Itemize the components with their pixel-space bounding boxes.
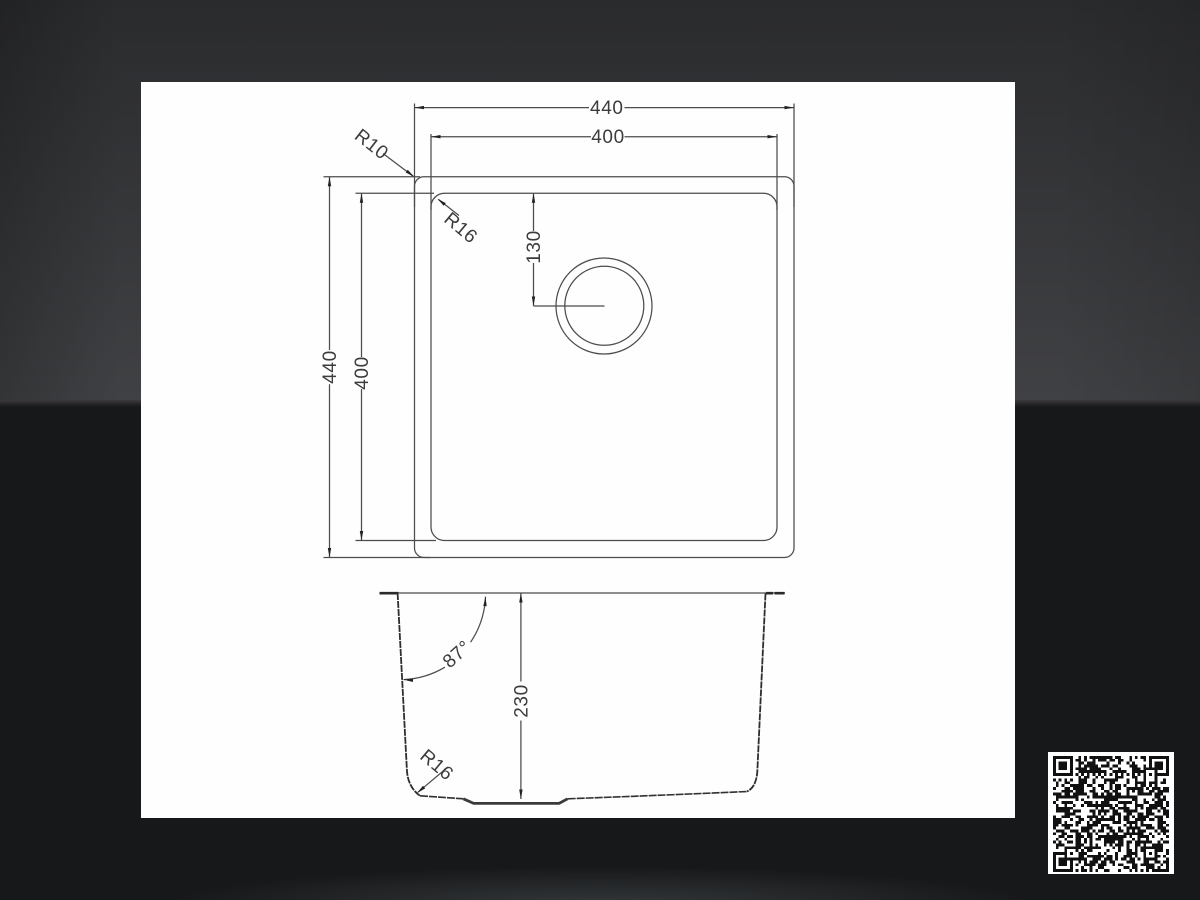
svg-text:400: 400 [352,356,373,390]
svg-text:440: 440 [320,350,341,384]
svg-text:R10: R10 [350,125,392,164]
svg-text:230: 230 [512,684,533,718]
svg-text:130: 130 [524,230,545,264]
svg-text:400: 400 [591,127,625,148]
svg-text:440: 440 [590,98,624,119]
svg-text:R16: R16 [440,209,482,249]
svg-text:R16: R16 [416,746,458,786]
